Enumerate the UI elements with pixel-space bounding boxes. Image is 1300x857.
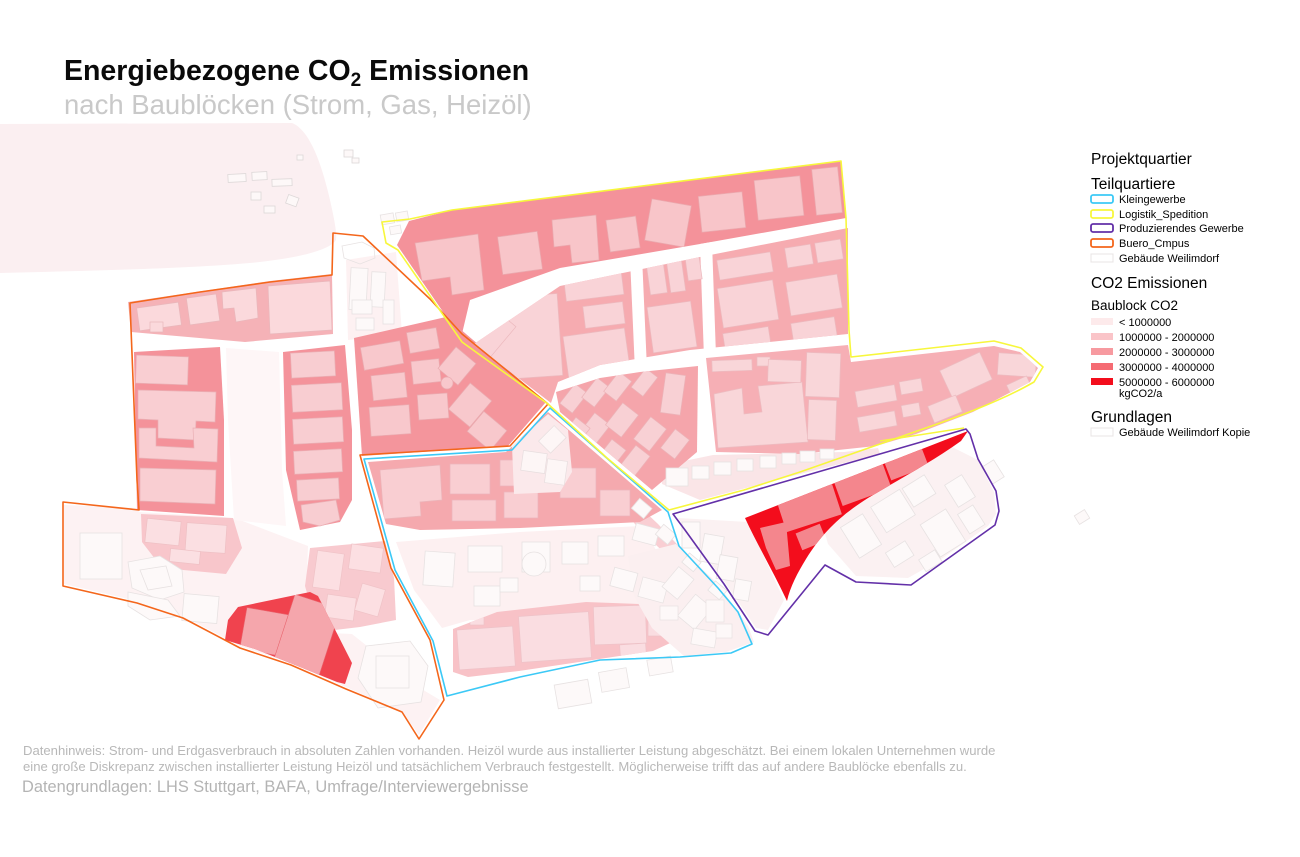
svg-text:Baublock CO2: Baublock CO2 [1091,298,1178,313]
svg-text:Gebäude Weilimdorf Kopie: Gebäude Weilimdorf Kopie [1119,427,1250,439]
svg-text:Datengrundlagen: LHS Stuttgart: Datengrundlagen: LHS Stuttgart, BAFA, Um… [22,778,529,796]
svg-text:Teilquartiere: Teilquartiere [1091,176,1175,193]
svg-text:Produzierendes Gewerbe: Produzierendes Gewerbe [1119,223,1244,235]
svg-text:Kleingewerbe: Kleingewerbe [1119,194,1186,206]
svg-text:2000000 - 3000000: 2000000 - 3000000 [1119,347,1214,359]
svg-text:1000000 - 2000000: 1000000 - 2000000 [1119,332,1214,344]
svg-text:Logistik_Spedition: Logistik_Spedition [1119,209,1208,221]
svg-text:< 1000000: < 1000000 [1119,317,1171,329]
svg-text:Gebäude Weilimdorf: Gebäude Weilimdorf [1119,253,1220,265]
svg-text:nach Baublöcken (Strom, Gas, H: nach Baublöcken (Strom, Gas, Heizöl) [64,89,532,120]
svg-text:Energiebezogene CO2 Emissionen: Energiebezogene CO2 Emissionen [64,55,529,91]
svg-text:Buero_Cmpus: Buero_Cmpus [1119,238,1190,250]
svg-text:Datenhinweis: Strom- und Erdga: Datenhinweis: Strom- und Erdgasverbrauch… [23,743,995,758]
svg-text:Projektquartier: Projektquartier [1091,151,1192,168]
svg-text:kgCO2/a: kgCO2/a [1119,388,1163,400]
svg-text:3000000 - 4000000: 3000000 - 4000000 [1119,362,1214,374]
svg-text:Grundlagen: Grundlagen [1091,409,1172,426]
svg-text:CO2 Emissionen: CO2 Emissionen [1091,275,1207,292]
svg-text:eine große Diskrepanz zwischen: eine große Diskrepanz zwischen installie… [23,759,967,774]
